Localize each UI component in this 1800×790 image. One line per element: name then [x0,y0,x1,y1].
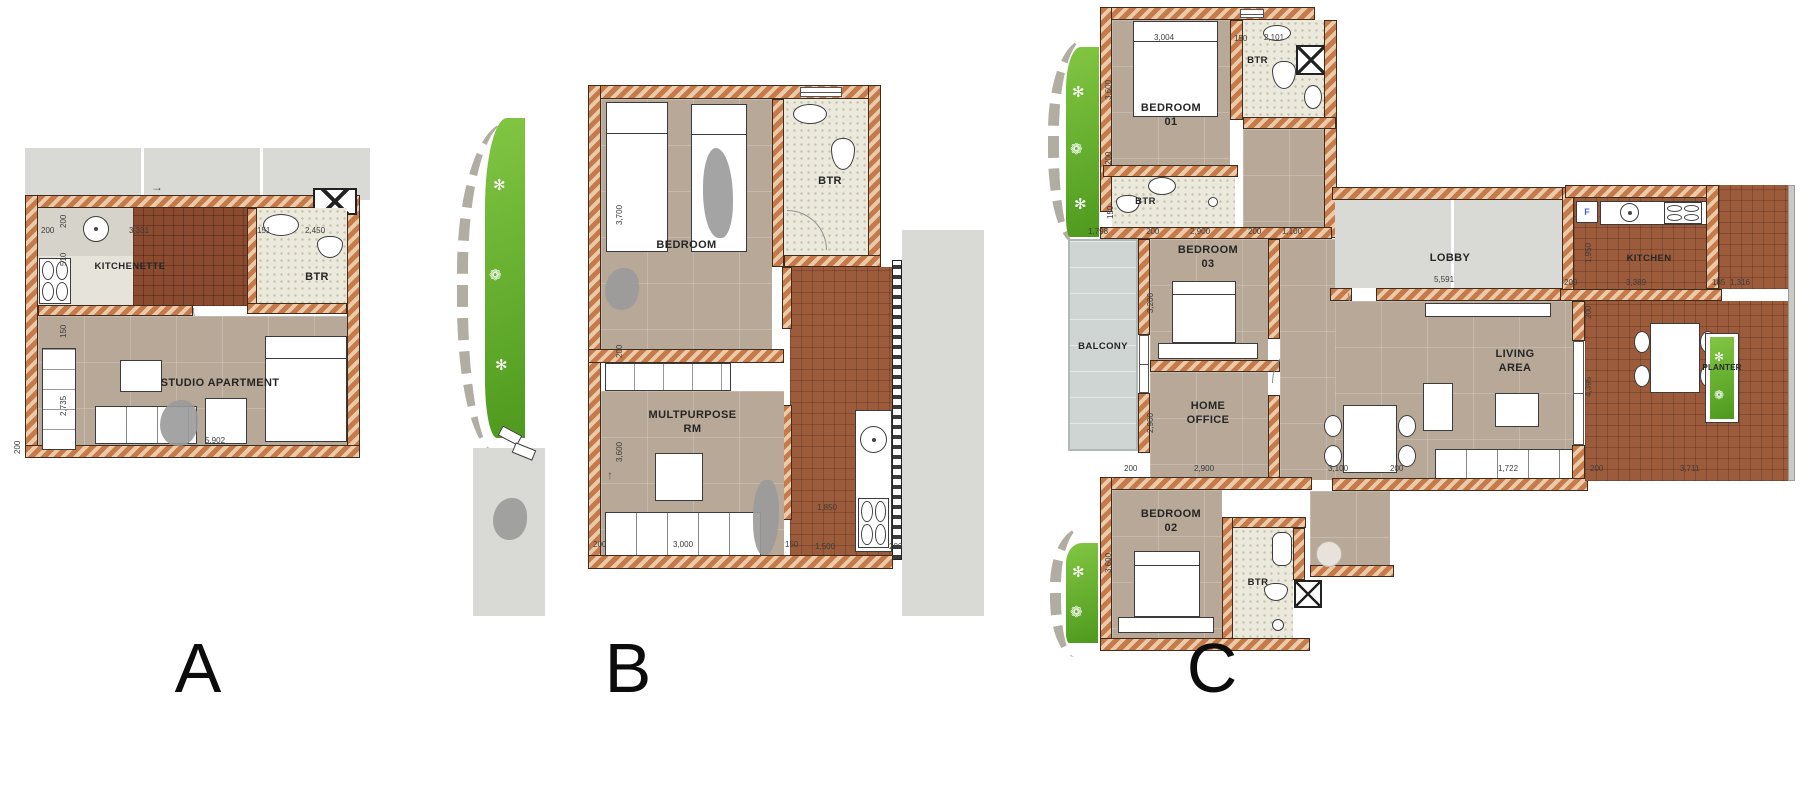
room-label-kitchenette: KITCHENETTE [65,261,195,273]
dimension-label: 200 [13,441,22,454]
burner-icon [56,282,68,301]
plant-icon [1070,142,1083,157]
bed-icon [1172,281,1236,343]
plant-icon [1072,85,1085,100]
coffee-table-icon [1495,393,1539,427]
plant-icon [493,178,506,193]
dimension-label: 185 [1712,278,1725,287]
wall [1293,528,1305,580]
floor-plan-c: BEDROOM 01 BTR BTR BALCONY BEDROOM 03 HO… [920,5,1800,660]
floor-plan-b: BEDROOM BTR MULTPURPOSE RM ↑ 3,7002003,6… [455,60,995,580]
kitchen-sink-icon [1620,203,1639,222]
dimension-label: 4,395 [1584,377,1593,397]
plan-letter-a: A [158,628,238,708]
dimension-label: 1,850 [817,503,837,512]
plant-icon [1074,197,1087,212]
chair-icon [1634,331,1650,353]
outdoor-table-icon [1650,323,1700,393]
plan-letter-b: B [588,628,668,708]
room-label-btr-bottom: BTR [1234,577,1282,589]
dimension-label: 200 [889,542,902,551]
wall [892,260,902,560]
room-label-bedroom01: BEDROOM 01 [1112,101,1230,130]
room-label-btr-mid: BTR [1123,196,1168,208]
dimension-label: 1,950 [1584,243,1593,263]
planter-strip [1066,47,1099,237]
window [1240,9,1264,18]
sliding-door [1573,341,1584,445]
dimension-label: 3,600 [1104,553,1113,573]
wall [588,555,893,569]
dimension-label: 2,900 [1194,464,1214,473]
washbasin-icon [793,104,827,124]
burner-icon [1667,214,1682,221]
dimension-label: 200 [593,540,606,549]
room-label-btr: BTR [800,174,860,188]
room-label-multipurpose: MULTPURPOSE RM [601,408,784,437]
burner-icon [42,261,54,280]
dimension-label: 151 [257,226,270,235]
dimension-label: 3,100 [1328,464,1348,473]
plant-icon [489,268,502,283]
wall [247,208,257,306]
dimension-label: 150 [1106,206,1115,219]
wall [25,195,38,458]
dimension-label: 2,900 [1146,413,1155,433]
wall [1243,117,1336,129]
dimension-label: 510 [59,253,68,266]
plant-icon [1072,565,1085,580]
wall [347,195,360,458]
wall [1103,7,1315,20]
bed-icon [1134,551,1200,617]
dimension-label: 3,004 [1154,33,1174,42]
wall [1222,517,1233,641]
dimension-label: 200 [59,215,68,228]
direction-arrow-icon: → [151,180,163,194]
dimension-label: 3,331 [129,226,149,235]
terrace-brick-floor [1719,185,1789,289]
wall [1100,7,1112,212]
direction-arrow-icon: ↑ [607,468,613,482]
wall [25,195,360,208]
tv-console-icon [1425,303,1551,317]
closet-icon [605,363,731,391]
chair-icon [1398,415,1416,437]
kitchen-sink-icon [860,426,887,453]
dimension-label: 2,735 [59,396,68,416]
room-label-balcony: BALCONY [1060,341,1146,353]
burner-icon [875,501,887,522]
sofa-icon [605,512,761,556]
bench-icon [1158,343,1258,359]
wall [1565,185,1723,198]
planter-strip [1710,337,1734,419]
plan-letter-c: C [1172,628,1252,708]
dining-table-icon [1343,405,1397,473]
wall [588,85,601,565]
dimension-label: 1,722 [1498,464,1518,473]
dimension-label: 3,389 [1626,278,1646,287]
elevator-shaft-icon [1296,45,1326,75]
shower-icon [1272,619,1284,631]
window [800,87,842,97]
dimension-label: 150 [785,540,798,549]
planter-strip [1066,543,1098,643]
entry-path-floor [133,208,247,306]
wall [247,303,347,314]
burner-icon [42,282,54,301]
armchair-icon [1423,383,1453,431]
room-label-planter: PLANTER [1690,363,1754,373]
stove-icon [858,498,889,548]
dimension-label: 1,316 [1730,278,1750,287]
dimension-label: 2,450 [305,226,325,235]
hallway-floor [1243,129,1324,239]
plant-icon [1070,605,1083,620]
burner-icon [1667,205,1682,212]
burner-icon [1684,205,1699,212]
planter-strip [485,118,525,438]
wall [1268,239,1280,339]
wall [772,99,784,267]
dimension-label: 3,600 [1104,80,1113,100]
dimension-label: 3,000 [673,540,693,549]
wall [1268,395,1280,480]
burner-icon [1684,214,1699,221]
kitchen-sink-icon [83,216,109,242]
room-label-living: LIVING AREA [1455,347,1575,376]
dimension-label: 1,798 [1088,227,1108,236]
stove-icon [1664,202,1702,224]
chair-icon [1324,415,1342,437]
floor-plan-a: → KITCHENETTE BTR STUDIO APARTMENT 20020… [25,148,375,463]
fridge-icon: F [1576,201,1598,223]
wall [868,85,881,267]
room-label-studio: STUDIO APARTMENT [110,376,330,390]
dimension-label: 200 [1248,227,1261,236]
dimension-label: 3,700 [615,205,624,225]
room-label-bedroom02: BEDROOM 02 [1112,507,1230,536]
wall [782,267,792,329]
plant-icon [495,358,508,373]
dimension-label: 200 [1390,464,1403,473]
wall [1706,185,1719,289]
dimension-label: 200 [1146,227,1159,236]
dimension-label: 3,711 [1680,464,1699,473]
wall [784,255,881,267]
washbasin-icon [1148,177,1176,195]
room-label-kitchen: KITCHEN [1580,253,1718,265]
room-label-btr-top: BTR [1235,55,1280,67]
terrace-parapet [1788,185,1795,481]
bathtub-icon [1272,532,1292,566]
wall [38,305,193,316]
shower-icon [1208,197,1218,207]
wall [1103,165,1238,177]
dimension-label: 200 [1584,306,1593,319]
dimension-label: 200 [1564,278,1577,287]
dimension-label: 150 [1234,34,1247,43]
dimension-label: 200 [1590,464,1603,473]
room-label-home-office: HOME OFFICE [1148,399,1268,428]
window [1139,335,1149,393]
wall [1572,445,1585,481]
floor-plan-sheet: → KITCHENETTE BTR STUDIO APARTMENT 20020… [0,0,1800,790]
person-figure [605,268,639,310]
person-figure [160,400,198,446]
burner-icon [875,524,887,545]
wall [1376,288,1586,301]
dimension-label: 1,500 [815,542,835,551]
wall [1100,477,1312,490]
dimension-label: 5,902 [205,436,225,445]
wall [1150,360,1280,372]
dimension-label: 5,591 [1434,275,1454,284]
dimension-label: 150 [59,325,68,338]
wall [1222,517,1306,528]
dimension-label: 200 [41,226,54,235]
washbasin-icon [1304,85,1322,109]
room-label-bedroom03: BEDROOM 03 [1148,243,1268,272]
burner-icon [861,524,873,545]
round-rug-icon [1316,541,1342,567]
dimension-label: 1,100 [1282,227,1302,236]
plant-icon [1714,389,1724,401]
person-figure [493,498,527,540]
room-label-bedroom: BEDROOM [601,238,772,252]
corridor-floor [1280,239,1335,480]
dimension-label: 2,101 [1264,33,1284,42]
dimension-label: 3,600 [615,442,624,462]
burner-icon [861,501,873,522]
wall [1332,187,1575,200]
dimension-label: 200 [615,345,624,358]
table-icon [655,453,703,501]
room-label-btr: BTR [287,270,347,284]
duct-shaft-icon [1294,580,1322,608]
chair-icon [1634,365,1650,387]
bed-icon [606,102,668,252]
plant-icon [1714,351,1724,363]
dimension-label: 200 [1124,464,1137,473]
dimension-label: 2,900 [1190,227,1210,236]
dimension-label: 3,200 [1146,293,1155,313]
wall [1560,289,1722,301]
dimension-label: 200 [1104,152,1113,165]
wall [1310,565,1394,577]
room-label-lobby: LOBBY [1335,251,1565,265]
wall [1332,478,1588,491]
